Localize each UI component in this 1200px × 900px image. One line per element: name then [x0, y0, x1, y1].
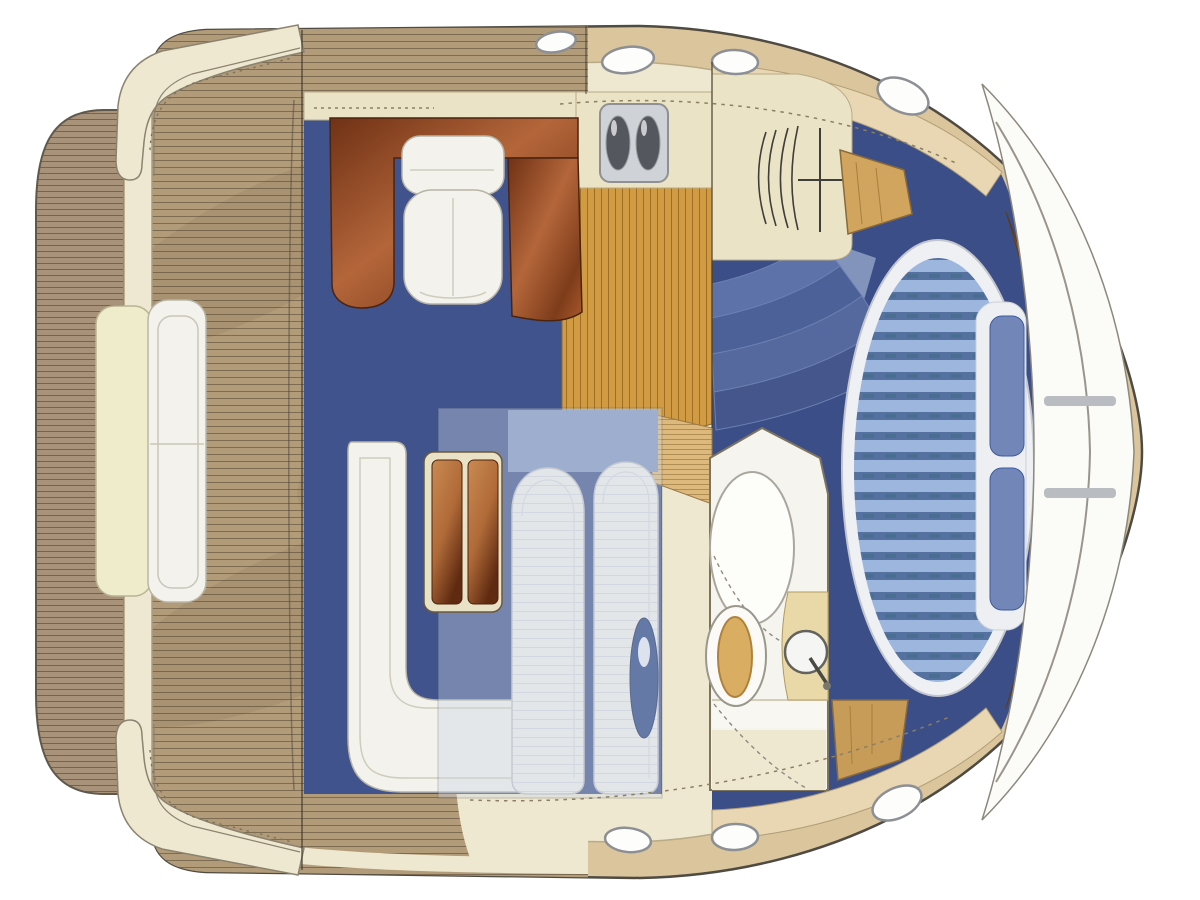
salon-table: [424, 452, 502, 612]
helm-seat: [402, 136, 504, 304]
bow-seam-top: [1044, 396, 1116, 406]
head-compartment: [706, 428, 831, 790]
toilet-seat: [718, 617, 752, 697]
floorplan-canvas: [0, 0, 1200, 900]
bed-pillow-blue-top: [990, 316, 1024, 456]
washbasin: [785, 631, 827, 673]
stern-bench: [96, 300, 206, 602]
bed-pillow-blue-bottom: [990, 468, 1024, 610]
porthole-icon: [712, 49, 759, 75]
galley-sink: [600, 104, 668, 182]
shower-basin: [710, 472, 794, 624]
yacht-floorplan-illustration: [0, 0, 1200, 900]
galley-floor: [562, 188, 712, 433]
bow-seam-bottom: [1044, 488, 1116, 498]
porthole-icon: [712, 823, 759, 851]
windshield-shelf: [304, 92, 586, 120]
cooktop-cabinet: [712, 74, 852, 260]
